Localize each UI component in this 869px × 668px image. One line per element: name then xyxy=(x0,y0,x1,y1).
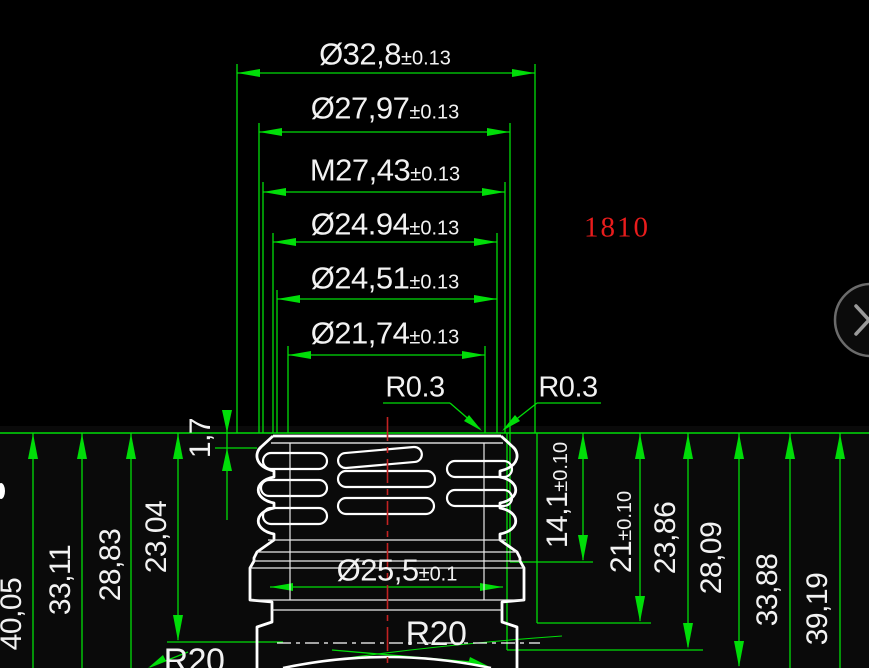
part-number-label: 1810 xyxy=(584,212,650,245)
dim-label-dia24-94: Ø24.94±0.13 xyxy=(311,209,460,240)
dim-label-14-1: 14,1±0.10 xyxy=(543,442,573,548)
dim-label-dia21-74: Ø21,74±0.13 xyxy=(311,318,460,349)
dim-label-23-86: 23,86 xyxy=(651,502,681,575)
cad-viewport[interactable]: Ø32,8±0.13 Ø27,97±0.13 M27,43±0.13 Ø24.9… xyxy=(0,0,869,668)
dim-label-dia25-5: Ø25,5±0.1 xyxy=(337,555,458,586)
dim-label-1-7: 1,7 xyxy=(186,418,216,458)
radius-label-r20-center: R20 xyxy=(406,617,467,651)
dim-label-39-19: 39,19 xyxy=(803,573,833,646)
dim-label-23-04: 23,04 xyxy=(142,501,172,574)
dim-label-40-05: 40,05 xyxy=(0,578,27,651)
dim-label-m27-43: M27,43±0.13 xyxy=(310,155,460,186)
dim-label-33-11: 33,11 xyxy=(46,545,76,615)
circle-button-outline xyxy=(835,284,869,356)
dim-label-28-09: 28,09 xyxy=(697,522,727,595)
radius-label-r03-right: R0.3 xyxy=(538,374,597,403)
thread-slots xyxy=(261,446,512,524)
radius-label-r20-left: R20 xyxy=(164,644,225,668)
next-arrow-button[interactable] xyxy=(833,282,869,358)
dim-label-21: 21±0.10 xyxy=(607,491,637,573)
dim-label-dia32-8: Ø32,8±0.13 xyxy=(319,39,451,70)
dim-label-dia27-97: Ø27,97±0.13 xyxy=(311,93,460,124)
radius-label-r03-left: R0.3 xyxy=(385,374,444,403)
dim-label-33-88: 33,88 xyxy=(753,554,783,627)
dim-label-dia24-51: Ø24,51±0.13 xyxy=(311,263,460,294)
dim-label-28-83: 28,83 xyxy=(96,529,126,602)
